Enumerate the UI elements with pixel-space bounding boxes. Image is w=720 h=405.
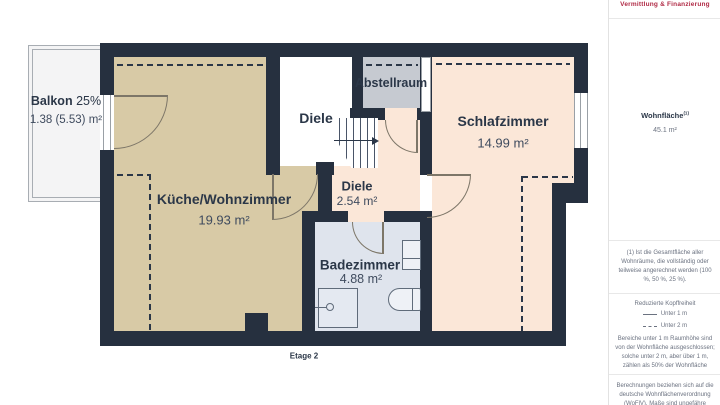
disclaimer: Berechnungen beziehen sich auf die deuts… bbox=[615, 382, 715, 405]
label-diele-lower: Diele bbox=[341, 179, 372, 194]
headroom-dash-kueche-h bbox=[117, 174, 150, 176]
sidebar-divider bbox=[609, 240, 720, 241]
schlafzimmer-window bbox=[574, 93, 588, 148]
stair-step bbox=[353, 118, 354, 168]
door-frame-line bbox=[103, 95, 104, 150]
wall-schlaf-left-lower bbox=[420, 218, 432, 331]
window-line bbox=[580, 93, 581, 148]
kueche-name: Küche/Wohnzimmer bbox=[157, 191, 291, 207]
legend-under-2m: Unter 2 m bbox=[615, 323, 715, 329]
wohnflaeche-footnote: (1) Ist die Gesamtfläche aller Wohnräume… bbox=[615, 249, 715, 285]
label-abstellraum: Abstellraum bbox=[355, 76, 427, 90]
window-line bbox=[587, 93, 588, 148]
stair-step bbox=[360, 118, 361, 168]
wall-right-lower bbox=[552, 203, 566, 331]
wall-left-upper bbox=[100, 43, 114, 95]
stair-step bbox=[367, 118, 368, 168]
headroom-dash-schlaf-v bbox=[521, 176, 523, 331]
headroom-dash-kueche-v bbox=[149, 174, 151, 331]
toilet bbox=[388, 288, 421, 311]
legend-under-2m-label: Unter 2 m bbox=[661, 323, 687, 329]
label-badezimmer-area: 4.88 m² bbox=[340, 272, 382, 286]
balkon-name: Balkon bbox=[31, 94, 73, 108]
label-kueche: Küche/Wohnzimmer bbox=[157, 191, 291, 207]
floor-plan: Balkon 25% 1.38 (5.53) m² Küche/Wohnzimm… bbox=[0, 0, 608, 405]
label-kueche-area: 19.93 m² bbox=[198, 213, 249, 228]
headroom-dash-schlaf-top bbox=[436, 63, 570, 65]
label-schlafzimmer-area: 14.99 m² bbox=[477, 136, 528, 151]
wall-bottom bbox=[100, 331, 566, 346]
headroom-dash-schlaf-h bbox=[522, 176, 573, 178]
legend-line-dash bbox=[643, 314, 657, 315]
sidebar-divider bbox=[609, 18, 720, 19]
wall-bad-top-a bbox=[302, 211, 348, 222]
wall-right-step bbox=[552, 183, 588, 203]
stair-direction-arrow bbox=[334, 140, 372, 141]
shower bbox=[318, 288, 358, 328]
wohnflaeche-value: 45.1 m² bbox=[615, 126, 715, 137]
label-schlafzimmer: Schlafzimmer bbox=[457, 113, 548, 129]
wohnflaeche-footnote-marker: (1) bbox=[683, 111, 689, 116]
wall-bad-left bbox=[302, 222, 315, 331]
label-diele-lower-area: 2.54 m² bbox=[337, 194, 378, 208]
headroom-dash-abstellraum bbox=[366, 64, 418, 66]
info-sidebar: Vermittlung & Finanzierung Wohnfläche(1)… bbox=[608, 0, 720, 405]
kopffreiheit-title: Reduzierte Kopffreiheit bbox=[615, 300, 715, 309]
wall-right-mid bbox=[574, 148, 588, 183]
wall-right-upper bbox=[574, 43, 588, 93]
label-diele-upper: Diele bbox=[299, 110, 332, 126]
wall-top bbox=[100, 43, 588, 57]
wohnflaeche-label: Wohnfläche(1) bbox=[615, 110, 715, 121]
wall-bad-top-b bbox=[384, 211, 432, 222]
legend-under-1m: Unter 1 m bbox=[615, 311, 715, 317]
wall-diele-left bbox=[266, 57, 280, 175]
headroom-dash-kueche-top bbox=[117, 64, 264, 66]
sink-vanity bbox=[402, 240, 421, 270]
floor-plan-page: Balkon 25% 1.38 (5.53) m² Küche/Wohnzimm… bbox=[0, 0, 720, 405]
door-frame-line bbox=[110, 95, 111, 150]
wall-left-lower bbox=[100, 150, 114, 346]
label-balkon-area: 1.38 (5.53) m² bbox=[30, 114, 102, 126]
wall-chimney-stub bbox=[245, 313, 268, 331]
label-badezimmer: Badezimmer bbox=[320, 258, 400, 273]
sidebar-divider bbox=[609, 293, 720, 294]
floor-label: Etage 2 bbox=[290, 352, 318, 361]
brand-logo-text: Vermittlung & Finanzierung bbox=[611, 1, 719, 8]
stair-arrow-head bbox=[372, 137, 379, 145]
sidebar-divider bbox=[609, 374, 720, 375]
label-balkon: Balkon 25% bbox=[31, 94, 101, 108]
balkon-share: 25% bbox=[76, 94, 101, 108]
kopffreiheit-note: Bereiche unter 1 m Raumhöhe sind von der… bbox=[615, 335, 715, 371]
shower-drain bbox=[326, 303, 334, 311]
legend-line-dotted bbox=[643, 326, 657, 327]
toilet-cistern-line bbox=[412, 289, 413, 310]
vanity-divider bbox=[403, 258, 420, 259]
window-line bbox=[574, 93, 575, 148]
legend-under-1m-label: Unter 1 m bbox=[661, 311, 687, 317]
